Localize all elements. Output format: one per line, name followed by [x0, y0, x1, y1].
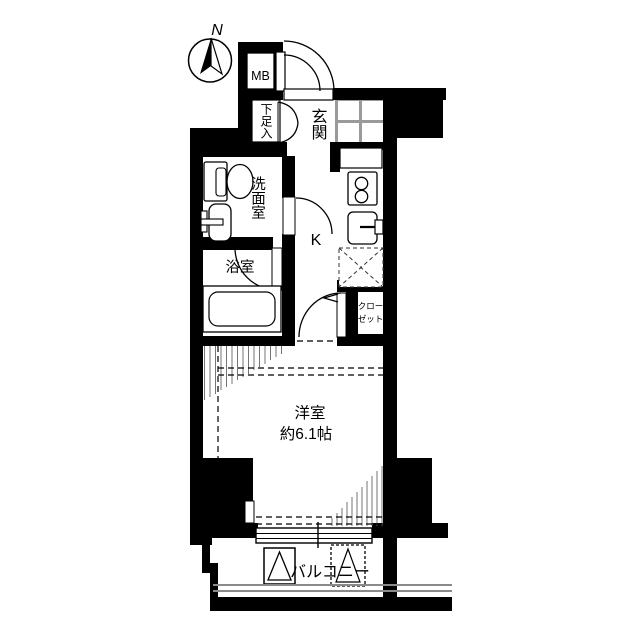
- washroom-label: 洗面室: [249, 176, 265, 220]
- north-label: N: [211, 22, 223, 39]
- room-door-arc: [299, 293, 341, 337]
- washroom: 洗面室: [201, 162, 332, 241]
- washroom-door-leaf: [283, 197, 295, 235]
- side-window: [245, 501, 254, 523]
- floor-plan-canvas: N MB 下足入 玄関 洗面室 浴室: [0, 0, 640, 640]
- room-name-label: 洋室: [294, 404, 325, 422]
- room-door-leaf: [337, 293, 346, 337]
- tile: [338, 123, 359, 142]
- tile: [338, 101, 359, 120]
- bathroom-door-leaf: [272, 248, 282, 290]
- balcony-window: [256, 522, 372, 548]
- sliding-window: [256, 528, 372, 543]
- front-door-swing-arc-inner: [284, 55, 320, 91]
- washroom-door-arc: [296, 198, 332, 234]
- room-size-label: 約6.1帖: [280, 425, 333, 443]
- entrance-area: 下足入 玄関: [252, 100, 328, 143]
- closet-label-2: ゼット: [358, 314, 384, 324]
- lowered-ceiling-hatch-top: [205, 346, 282, 400]
- closet: クロー ゼット: [299, 293, 383, 337]
- balcony-label: バルコニー: [290, 564, 370, 581]
- balcony: バルコニー: [213, 545, 452, 591]
- door-threshold: [284, 89, 333, 100]
- kitchen-cupboard: [340, 148, 382, 168]
- refrigerator-space: [339, 248, 383, 287]
- bathroom: 浴室: [203, 248, 282, 332]
- compass: N: [189, 22, 232, 82]
- floor-plan: N MB 下足入 玄関 洗面室 浴室: [0, 0, 640, 640]
- shoe-cabinet-label: 下足入: [259, 103, 273, 139]
- meter-box-label: MB: [251, 69, 270, 83]
- closet-label-1: クロー: [358, 301, 384, 311]
- kitchen: K: [311, 148, 383, 287]
- entrance-tile-floor: [335, 98, 386, 145]
- entrance-label: 玄関: [309, 108, 328, 141]
- shoe-cabinet-door-arcs: [278, 102, 298, 143]
- hatch-triangle-icon: [268, 552, 291, 580]
- tile: [362, 123, 383, 142]
- kitchen-faucet-base: [375, 220, 383, 234]
- faucet-icon: [201, 219, 223, 225]
- tile: [362, 101, 383, 120]
- bathroom-label: 浴室: [226, 259, 255, 276]
- kitchen-label: K: [311, 232, 322, 249]
- front-door-leaf: [276, 52, 285, 91]
